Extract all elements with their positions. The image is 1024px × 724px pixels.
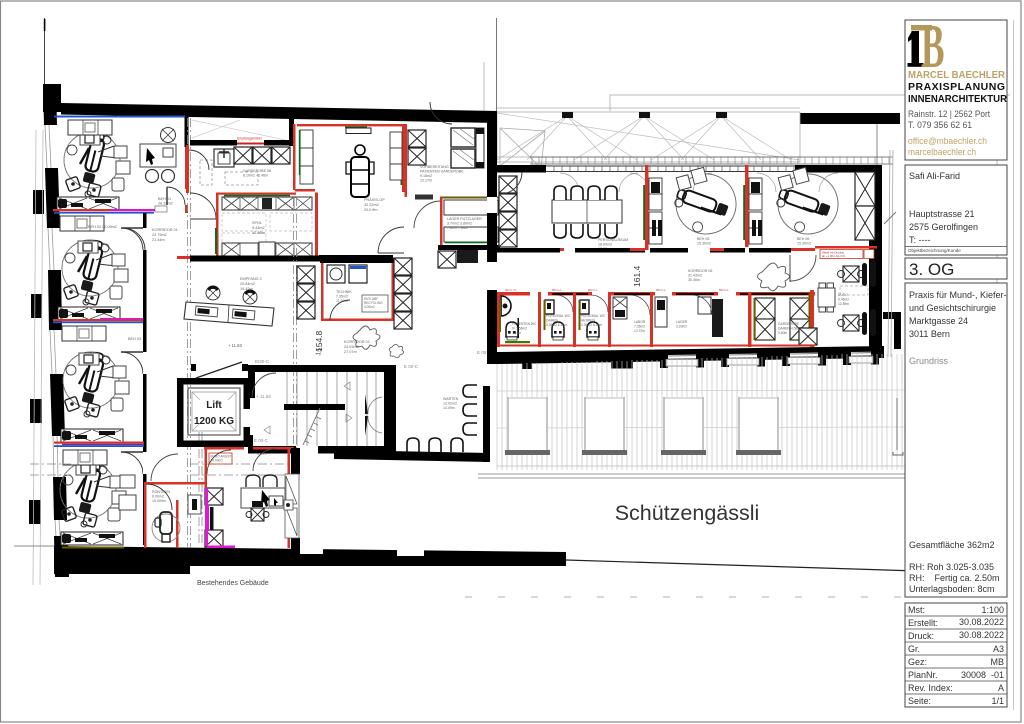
svg-text:BEH 02 22.09m2: BEH 02 22.09m2: [88, 225, 117, 229]
svg-text:6.00m2: 6.00m2: [152, 495, 164, 499]
svg-text:12.48m: 12.48m: [252, 231, 265, 235]
svg-text:DAMEN 4.56m2: DAMEN 4.56m2: [778, 327, 802, 331]
svg-text:T: ----: T: ----: [909, 235, 931, 245]
svg-text:PERSONAL WC: PERSONAL WC: [546, 314, 571, 318]
svg-text:27.07m: 27.07m: [344, 350, 357, 354]
svg-text:IV 3.56m2: IV 3.56m2: [512, 327, 527, 331]
svg-text:Marktgasse 24: Marktgasse 24: [909, 316, 968, 326]
svg-text:24.93m2: 24.93m2: [344, 345, 359, 349]
svg-text:A3: A3: [993, 644, 1004, 654]
svg-text:Hauptstrasse 21: Hauptstrasse 21: [909, 209, 975, 219]
svg-text:Unterlagsboden: 8cm: Unterlagsboden: 8cm: [909, 584, 995, 594]
svg-text:A: A: [998, 683, 1004, 693]
svg-text:PRAXISPLANUNG: PRAXISPLANUNG: [908, 81, 1005, 93]
svg-text:PERSONAL WC: PERSONAL WC: [581, 314, 606, 318]
svg-text:Erstellt:: Erstellt:: [908, 618, 938, 628]
svg-text:RH: Fertig ca. 2.50m: RH: Fertig ca. 2.50m: [909, 573, 1000, 583]
svg-text:80cm L: 80cm L: [719, 288, 729, 292]
svg-text:office@mbaechler.ch: office@mbaechler.ch: [908, 136, 987, 146]
svg-text:Lift: Lift: [206, 400, 222, 411]
svg-text:161.4: 161.4: [632, 265, 642, 287]
svg-text:3.70m2 3.89m2: 3.70m2 3.89m2: [447, 222, 472, 226]
svg-text:E 00-C: E 00-C: [404, 364, 419, 369]
svg-text:7.80m 7.84m: 7.80m 7.84m: [447, 226, 468, 230]
svg-text:LAGER PUTZLAGER: LAGER PUTZLAGER: [447, 217, 482, 221]
svg-text:Grundriss: Grundriss: [909, 356, 949, 366]
svg-text:Praxis für Mund-, Kiefer-: Praxis für Mund-, Kiefer-: [909, 290, 1007, 300]
svg-text:2575 Gerolfingen: 2575 Gerolfingen: [909, 222, 978, 232]
svg-text:14.09m: 14.09m: [443, 406, 455, 410]
svg-text:12.37m: 12.37m: [634, 329, 645, 333]
svg-text:12.89m: 12.89m: [838, 302, 849, 306]
svg-text:KORRIDOR 06: KORRIDOR 06: [688, 269, 712, 273]
svg-text:Gez:: Gez:: [908, 657, 927, 667]
svg-text:4.00m2: 4.00m2: [364, 305, 375, 309]
svg-text:SPÜL: SPÜL: [252, 221, 262, 225]
svg-text:9.43m2: 9.43m2: [252, 226, 265, 230]
svg-text:Schützengässli: Schützengässli: [615, 501, 760, 525]
svg-text:PRAXIS-OP: PRAXIS-OP: [364, 198, 385, 202]
svg-text:Safi Ali-Farid: Safi Ali-Farid: [909, 171, 960, 181]
svg-text:26.32m2: 26.32m2: [158, 202, 173, 206]
svg-text:9.46m2: 9.46m2: [838, 298, 849, 302]
svg-text:90cm L: 90cm L: [257, 452, 267, 456]
svg-text:ab +1.00m bis O.K.: ab +1.00m bis O.K.: [822, 254, 846, 258]
svg-text:1/1: 1/1: [991, 696, 1004, 706]
svg-text:21.44m: 21.44m: [152, 238, 165, 242]
svg-text:80cm L: 80cm L: [552, 288, 562, 292]
svg-text:+ 11.63: + 11.63: [256, 394, 271, 399]
svg-text:15.30m2: 15.30m2: [697, 242, 711, 246]
svg-text:15.30m2: 15.30m2: [797, 242, 811, 246]
svg-text:3. OG: 3. OG: [909, 260, 954, 279]
svg-text:E 00-C: E 00-C: [254, 438, 269, 443]
svg-text:KORRIDOR 01: KORRIDOR 01: [152, 228, 178, 232]
svg-text:BEH 03: BEH 03: [128, 337, 141, 341]
svg-text:MARCEL BAECHLER: MARCEL BAECHLER: [908, 70, 1006, 81]
svg-text:12.17m: 12.17m: [420, 179, 432, 183]
svg-text:9.50m: 9.50m: [778, 331, 787, 335]
svg-text:Gr.: Gr.: [908, 644, 920, 654]
svg-text:1:100: 1:100: [981, 605, 1004, 615]
svg-text:15: 15: [315, 347, 323, 356]
svg-text:Druck:: Druck:: [908, 631, 934, 641]
svg-text:PATIENTEN WC: PATIENTEN WC: [512, 322, 537, 326]
svg-text:2.36m2 6.26m: 2.36m2 6.26m: [581, 323, 602, 327]
svg-text:30.46m: 30.46m: [688, 278, 700, 282]
svg-text:Rev. Index:: Rev. Index:: [908, 683, 953, 693]
svg-text:PERSONALRAUM: PERSONALRAUM: [598, 238, 628, 242]
svg-text:INNENARCHITEKTUR: INNENARCHITEKTUR: [908, 93, 1007, 105]
svg-text:HERREN: HERREN: [581, 319, 596, 323]
svg-text:T. 079 356 62 61: T. 079 356 62 61: [908, 120, 972, 130]
svg-text:LABOR: LABOR: [634, 320, 646, 324]
svg-text:7.35m2: 7.35m2: [634, 325, 645, 329]
svg-text:BEH 05: BEH 05: [697, 237, 709, 241]
svg-text:+ 11.63: + 11.63: [228, 343, 242, 348]
svg-text:VORBEREITUNG: VORBEREITUNG: [420, 165, 449, 169]
svg-text:Mst:: Mst:: [908, 605, 925, 615]
svg-text:Empfangsmöbel: Empfangsmöbel: [237, 137, 262, 141]
svg-text:BEH 06: BEH 06: [797, 237, 809, 241]
svg-text:marcelbaechler.ch: marcelbaechler.ch: [908, 147, 976, 157]
svg-text:Objektbezeichnung/Kunde: Objektbezeichnung/Kunde: [908, 248, 961, 253]
svg-text:Gesamtfläche 362m2: Gesamtfläche 362m2: [909, 540, 995, 550]
svg-text:RH: Roh 3.025-3.035: RH: Roh 3.025-3.035: [909, 562, 994, 572]
svg-text:22.79m2: 22.79m2: [152, 233, 167, 237]
svg-text:31.43m2: 31.43m2: [688, 274, 702, 278]
svg-text:20.84m2: 20.84m2: [240, 282, 255, 286]
svg-text:TECHNIK: TECHNIK: [336, 290, 352, 294]
svg-text:und Gesichtschirurgie: und Gesichtschirurgie: [909, 303, 996, 313]
svg-text:90cm TL: 90cm TL: [505, 288, 517, 292]
svg-text:GARDEROBE: GARDEROBE: [778, 322, 800, 326]
svg-text:9.16m2: 9.16m2: [420, 174, 432, 178]
svg-text:PlanNr.: PlanNr.: [908, 670, 938, 680]
svg-text:BEH 01: BEH 01: [158, 197, 171, 201]
svg-text:PATIENTEN GARDEROBE: PATIENTEN GARDEROBE: [420, 170, 464, 174]
svg-text:DAMEN: DAMEN: [546, 319, 559, 323]
svg-text:EI30-C: EI30-C: [255, 359, 270, 364]
svg-text:7.95m2: 7.95m2: [336, 295, 348, 299]
svg-text:20.0 lfm: 20.0 lfm: [364, 208, 378, 212]
svg-text:3.20m2: 3.20m2: [676, 325, 687, 329]
svg-text:RÖNTGEN: RÖNTGEN: [152, 490, 170, 494]
svg-text:32.22m2: 32.22m2: [364, 203, 379, 207]
svg-text:30.08.2022: 30.08.2022: [959, 630, 1004, 640]
svg-text:10.00lfm: 10.00lfm: [152, 499, 166, 503]
svg-text:3.36m2 6.26m: 3.36m2 6.26m: [546, 323, 567, 327]
svg-text:EMPFANG 2: EMPFANG 2: [240, 277, 262, 281]
svg-text:Seite:: Seite:: [908, 696, 931, 706]
svg-text:1200 KG: 1200 KG: [194, 416, 234, 427]
svg-text:8.10m2 +2.46m: 8.10m2 +2.46m: [243, 174, 268, 178]
svg-text:30008 -01: 30008 -01: [961, 670, 1004, 680]
svg-text:MB: MB: [991, 657, 1005, 667]
svg-text:LAGER: LAGER: [676, 320, 688, 324]
svg-text:Rainstr. 12 | 2562 Port: Rainstr. 12 | 2562 Port: [908, 109, 990, 119]
svg-text:18.09m2: 18.09m2: [598, 243, 612, 247]
svg-text:7.18m: 7.18m: [512, 331, 521, 335]
svg-text:KORRIDOR 02: KORRIDOR 02: [344, 340, 370, 344]
svg-text:80cm L: 80cm L: [656, 288, 666, 292]
svg-text:12.02m2: 12.02m2: [443, 402, 457, 406]
svg-text:30.08.2022: 30.08.2022: [959, 617, 1004, 627]
svg-text:80cm L: 80cm L: [588, 288, 598, 292]
svg-text:3011 Bern: 3011 Bern: [909, 329, 950, 339]
svg-text:Bestehendes Gebäude: Bestehendes Gebäude: [197, 580, 269, 587]
svg-text:11.07m: 11.07m: [336, 299, 348, 303]
svg-text:WARTEN: WARTEN: [443, 397, 459, 401]
